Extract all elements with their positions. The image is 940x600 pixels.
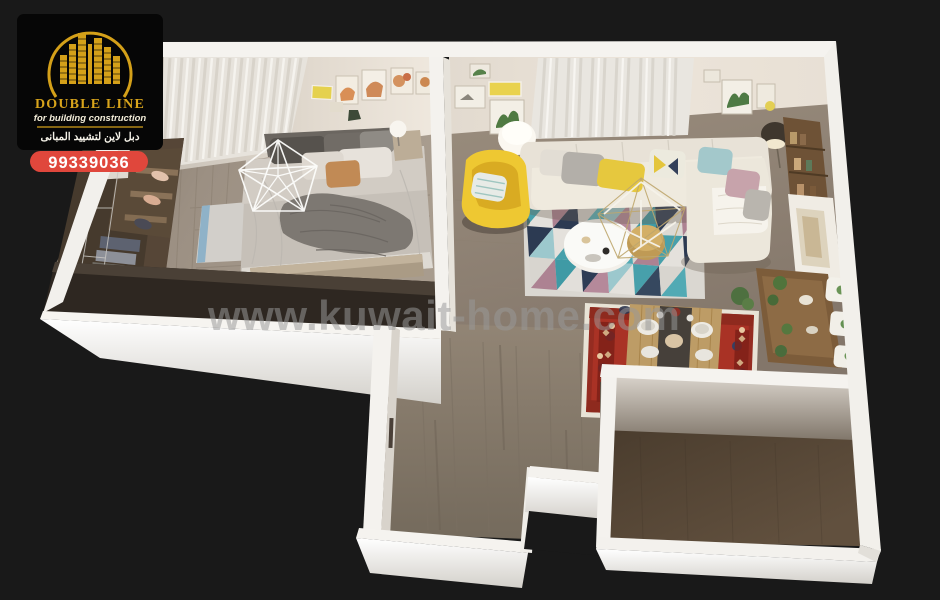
svg-text:www.kuwait-home.com: www.kuwait-home.com <box>207 292 680 339</box>
svg-text:99339036: 99339036 <box>48 154 129 172</box>
svg-text:DOUBLE LINE: DOUBLE LINE <box>35 97 145 112</box>
svg-text:دبل لاين لتشييد المبانى: دبل لاين لتشييد المبانى <box>40 131 139 143</box>
svg-text:for building construction: for building construction <box>34 113 147 124</box>
